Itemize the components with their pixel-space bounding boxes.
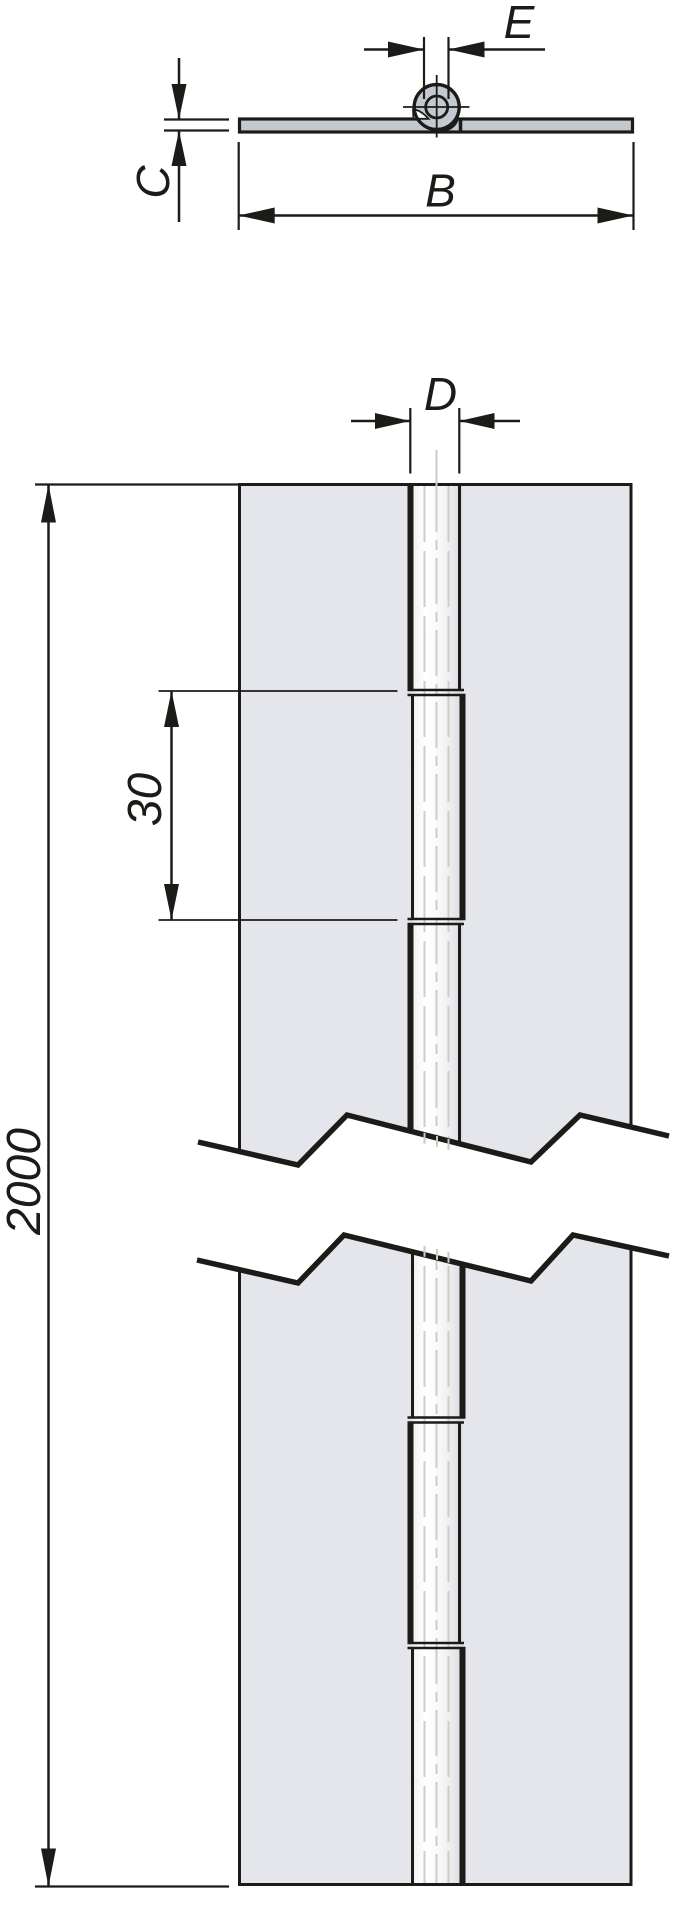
svg-text:30: 30 — [119, 773, 172, 827]
svg-text:D: D — [424, 368, 457, 420]
svg-text:2000: 2000 — [0, 1128, 51, 1236]
svg-text:E: E — [504, 0, 536, 48]
svg-text:B: B — [425, 165, 456, 217]
svg-text:C: C — [127, 165, 179, 199]
